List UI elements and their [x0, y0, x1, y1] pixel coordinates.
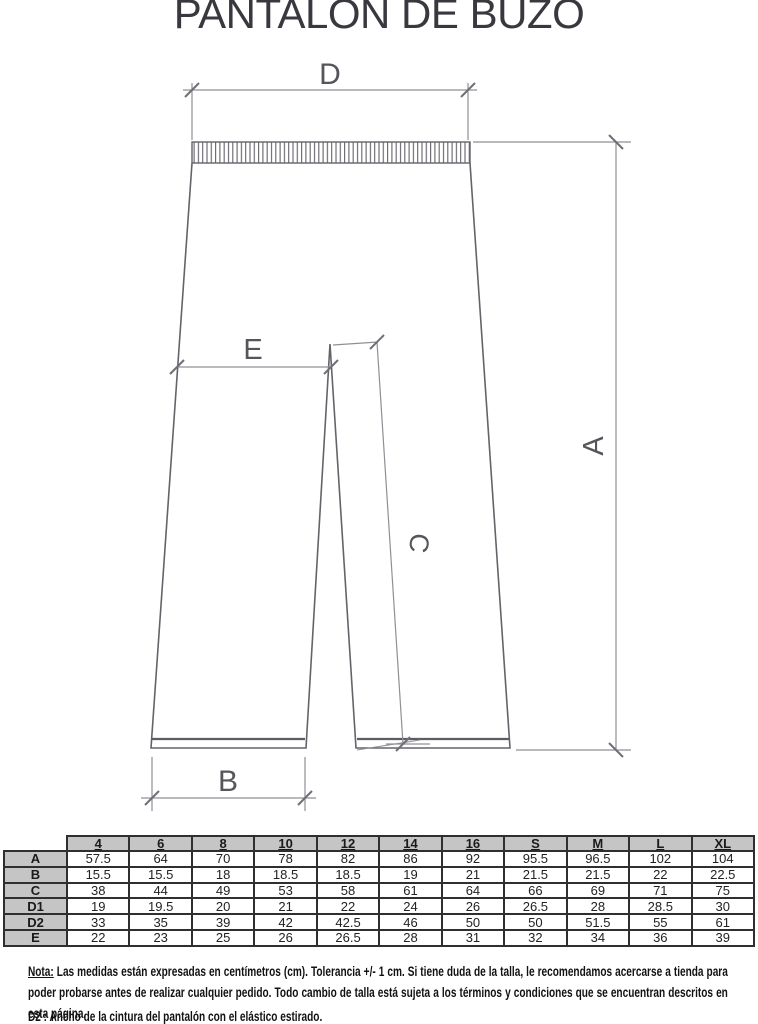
measure-value-cell: 61	[692, 914, 754, 930]
measure-value-cell: 20	[192, 898, 254, 914]
measure-value-cell: 26	[442, 898, 504, 914]
measure-value-cell: 26.5	[317, 930, 379, 946]
size-guide-page: PANTALON DE BUZO D	[0, 0, 758, 1024]
size-col-header: 8	[192, 836, 254, 851]
measure-value-cell: 30	[692, 898, 754, 914]
measure-value-cell: 21.5	[504, 867, 566, 883]
size-col-header: XL	[692, 836, 754, 851]
measure-value-cell: 42	[254, 914, 316, 930]
measure-value-cell: 86	[379, 851, 441, 867]
measure-value-cell: 78	[254, 851, 316, 867]
waistband-ribbing	[192, 142, 470, 163]
measure-value-cell: 34	[567, 930, 629, 946]
measure-value-cell: 49	[192, 883, 254, 899]
note-label: Nota:	[28, 963, 54, 979]
measure-value-cell: 28	[567, 898, 629, 914]
measure-value-cell: 25	[192, 930, 254, 946]
measure-row-label: C	[4, 883, 67, 899]
size-col-header: 14	[379, 836, 441, 851]
measure-value-cell: 61	[379, 883, 441, 899]
measure-value-cell: 19	[379, 867, 441, 883]
size-table-body: A57.564707882869295.596.5102104B15.515.5…	[4, 851, 754, 946]
measure-value-cell: 50	[504, 914, 566, 930]
measure-value-cell: 22	[629, 867, 691, 883]
measure-row: A57.564707882869295.596.5102104	[4, 851, 754, 867]
measure-value-cell: 21	[254, 898, 316, 914]
measure-row-label: B	[4, 867, 67, 883]
size-col-header: S	[504, 836, 566, 851]
size-col-header: 12	[317, 836, 379, 851]
measure-value-cell: 96.5	[567, 851, 629, 867]
measure-value-cell: 57.5	[67, 851, 129, 867]
measure-value-cell: 26	[254, 930, 316, 946]
measure-value-cell: 50	[442, 914, 504, 930]
measure-value-cell: 42.5	[317, 914, 379, 930]
measure-value-cell: 69	[567, 883, 629, 899]
measure-row-label: D2	[4, 914, 67, 930]
size-col-header: 6	[129, 836, 191, 851]
measure-value-cell: 70	[192, 851, 254, 867]
measure-value-cell: 21	[442, 867, 504, 883]
measure-value-cell: 19.5	[129, 898, 191, 914]
measure-row-label: A	[4, 851, 67, 867]
measure-row: D23335394242.546505051.55561	[4, 914, 754, 930]
measure-value-cell: 18.5	[317, 867, 379, 883]
measure-value-cell: 44	[129, 883, 191, 899]
measure-row: E2223252626.5283132343639	[4, 930, 754, 946]
dim-label-c: C	[403, 532, 435, 555]
size-col-header: L	[629, 836, 691, 851]
measure-value-cell: 64	[442, 883, 504, 899]
measure-value-cell: 71	[629, 883, 691, 899]
pants-outline	[151, 163, 510, 748]
d2-note: D2 : Ancho de la cintura del pantalón co…	[28, 1006, 728, 1024]
measure-row-label: E	[4, 930, 67, 946]
measure-value-cell: 18	[192, 867, 254, 883]
measure-value-cell: 31	[442, 930, 504, 946]
measure-value-cell: 15.5	[129, 867, 191, 883]
measure-value-cell: 28	[379, 930, 441, 946]
measure-value-cell: 36	[629, 930, 691, 946]
measure-value-cell: 64	[129, 851, 191, 867]
size-col-header: 16	[442, 836, 504, 851]
measure-value-cell: 19	[67, 898, 129, 914]
measure-row-label: D1	[4, 898, 67, 914]
measure-value-cell: 32	[504, 930, 566, 946]
measure-value-cell: 22	[317, 898, 379, 914]
size-col-header: M	[567, 836, 629, 851]
dim-label-d: D	[319, 58, 341, 91]
measure-value-cell: 18.5	[254, 867, 316, 883]
measure-row: B15.515.51818.518.5192121.521.52222.5	[4, 867, 754, 883]
measure-value-cell: 15.5	[67, 867, 129, 883]
dim-label-e: E	[243, 334, 262, 366]
measure-value-cell: 23	[129, 930, 191, 946]
measure-value-cell: 82	[317, 851, 379, 867]
measure-value-cell: 35	[129, 914, 191, 930]
measure-value-cell: 26.5	[504, 898, 566, 914]
measure-value-cell: 21.5	[567, 867, 629, 883]
measure-value-cell: 51.5	[567, 914, 629, 930]
dim-label-b: B	[218, 765, 238, 798]
measure-value-cell: 22.5	[692, 867, 754, 883]
measure-value-cell: 28.5	[629, 898, 691, 914]
dim-label-a: A	[578, 436, 610, 456]
measure-value-cell: 66	[504, 883, 566, 899]
measure-value-cell: 46	[379, 914, 441, 930]
measure-value-cell: 95.5	[504, 851, 566, 867]
measure-row: D11919.5202122242626.52828.530	[4, 898, 754, 914]
pants-diagram: D A E C	[0, 0, 758, 830]
measure-value-cell: 24	[379, 898, 441, 914]
corner-cell	[4, 836, 67, 851]
measure-value-cell: 102	[629, 851, 691, 867]
measure-value-cell: 75	[692, 883, 754, 899]
measure-value-cell: 39	[192, 914, 254, 930]
size-table-head: 46810121416SMLXL	[4, 836, 754, 851]
measure-value-cell: 55	[629, 914, 691, 930]
dimension-d	[183, 83, 477, 140]
measure-value-cell: 39	[692, 930, 754, 946]
measure-value-cell: 33	[67, 914, 129, 930]
measure-value-cell: 38	[67, 883, 129, 899]
measure-value-cell: 22	[67, 930, 129, 946]
measure-value-cell: 92	[442, 851, 504, 867]
size-col-header: 4	[67, 836, 129, 851]
measure-value-cell: 58	[317, 883, 379, 899]
measure-row: C3844495358616466697175	[4, 883, 754, 899]
measure-value-cell: 53	[254, 883, 316, 899]
size-col-header: 10	[254, 836, 316, 851]
size-table: 46810121416SMLXL A57.564707882869295.596…	[3, 835, 755, 947]
measure-value-cell: 104	[692, 851, 754, 867]
